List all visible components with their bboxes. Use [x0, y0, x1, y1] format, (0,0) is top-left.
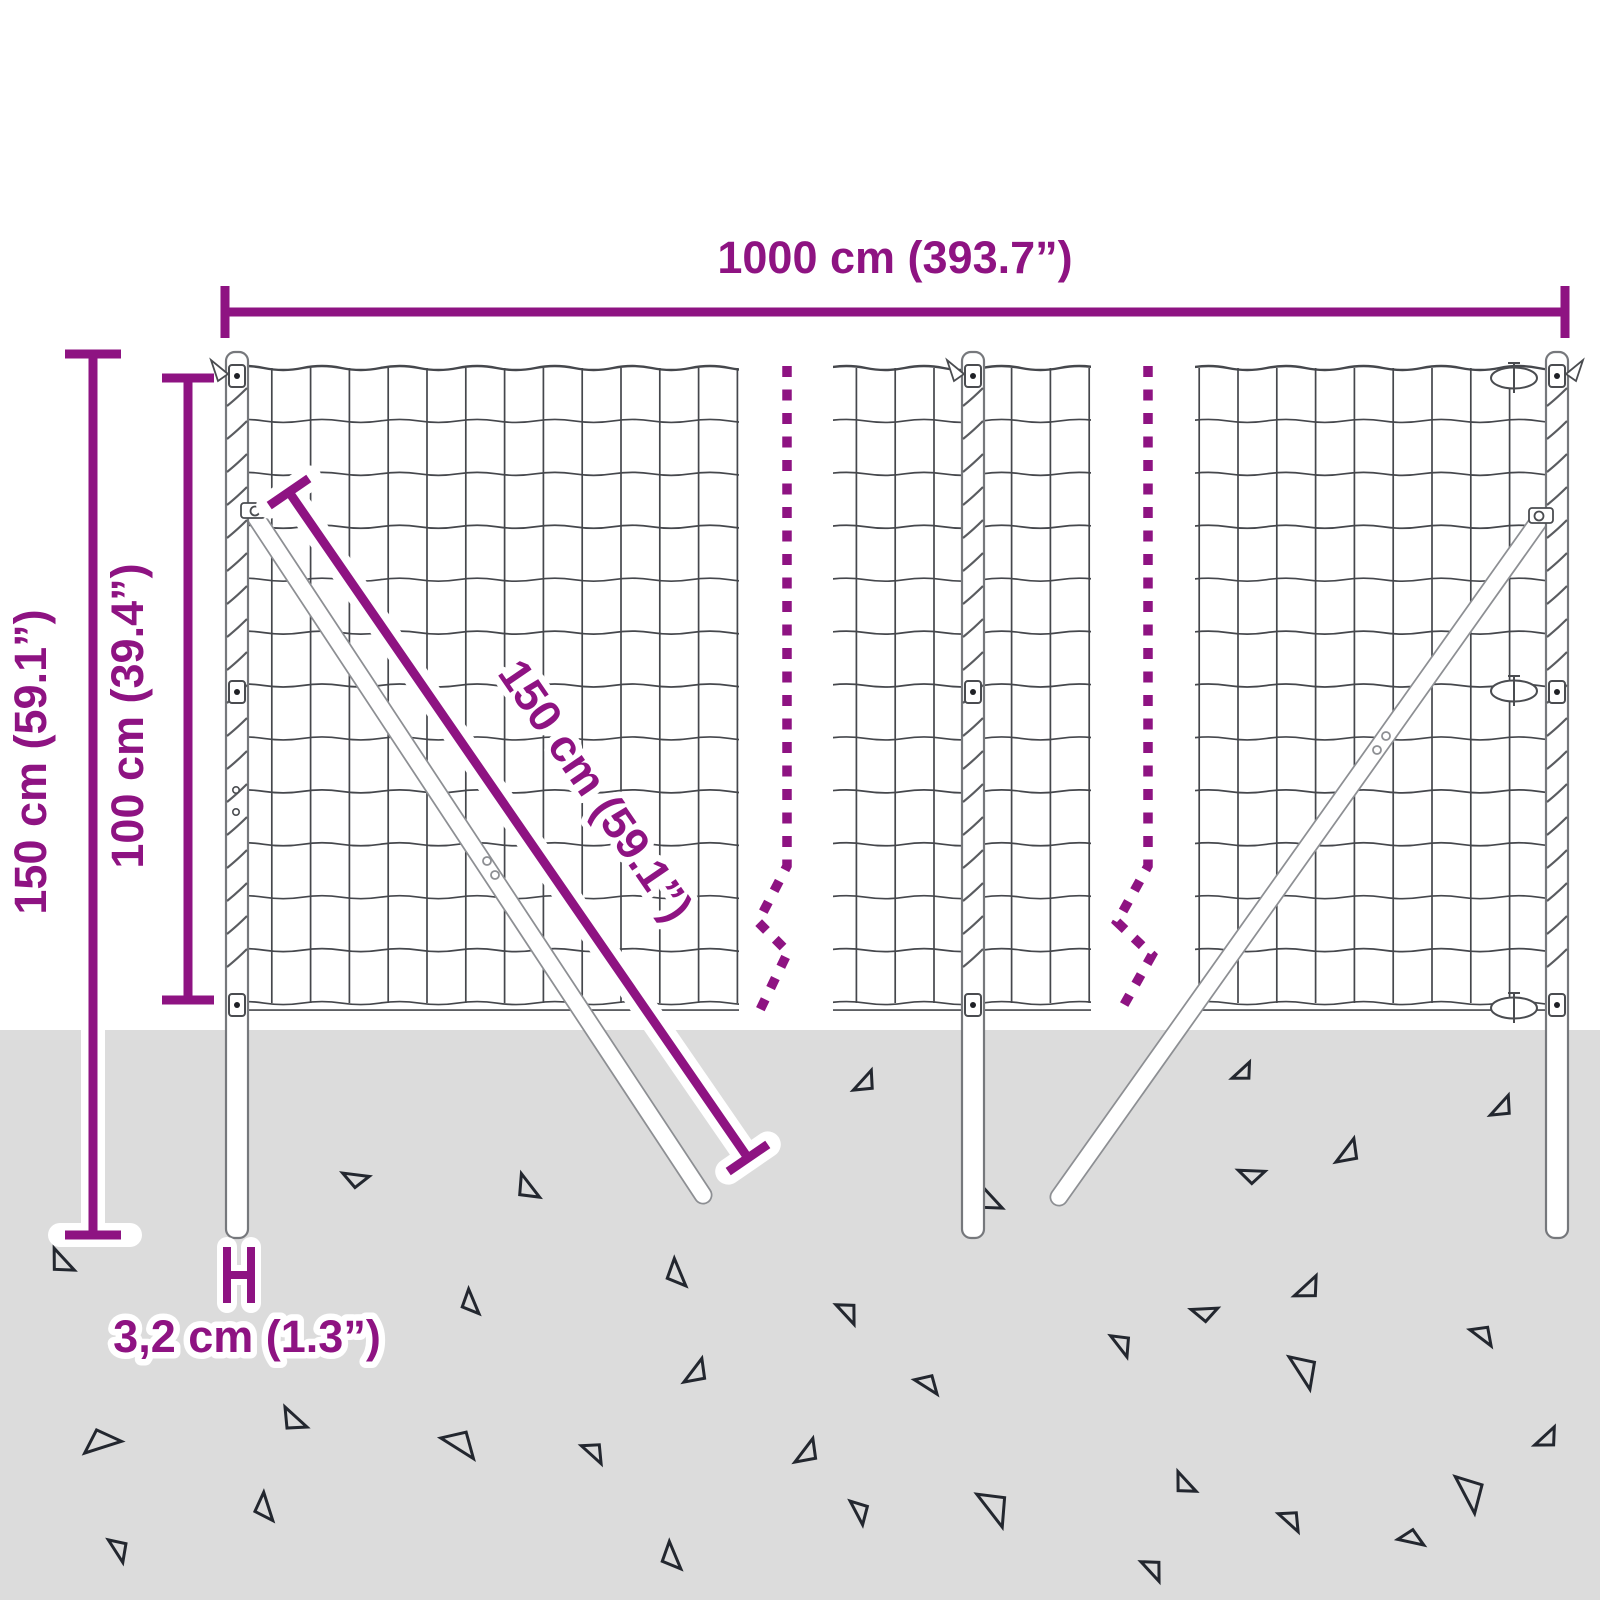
post-clamp-bolt: [1554, 689, 1560, 695]
post-clamp-bolt: [1554, 373, 1560, 379]
fence-post-body: [962, 352, 984, 1238]
strut-bolt-hole: [483, 857, 491, 865]
strut-bolt-hole: [1382, 732, 1390, 740]
strut-pivot-pin: [1535, 512, 1544, 521]
strut-bolt-hole: [1373, 746, 1381, 754]
width-label: 1000 cm (393.7”): [717, 232, 1072, 283]
total-height-label: 150 cm (59.1”): [5, 609, 56, 914]
post-clamp-bolt: [970, 689, 976, 695]
fence-dimension-diagram: 1000 cm (393.7”) 150 cm (59.1”) 100 cm (…: [0, 0, 1600, 1600]
post-clamp-bolt: [234, 1002, 240, 1008]
post-hole: [233, 809, 239, 815]
post-clamp-bolt: [970, 373, 976, 379]
post-hole: [233, 787, 239, 793]
fence-post-body: [1546, 352, 1568, 1238]
fence-post-body: [226, 352, 248, 1238]
post-clamp-bolt: [1554, 1002, 1560, 1008]
strut-bolt-hole: [491, 871, 499, 879]
mesh-height-label: 100 cm (39.4”): [102, 563, 153, 868]
post-clamp-bolt: [234, 373, 240, 379]
diagram-canvas: 1000 cm (393.7”) 150 cm (59.1”) 100 cm (…: [0, 0, 1600, 1600]
post-diameter-label: 3,2 cm (1.3”): [113, 1311, 381, 1362]
post-clamp-bolt: [234, 689, 240, 695]
post-clamp-bolt: [970, 1002, 976, 1008]
